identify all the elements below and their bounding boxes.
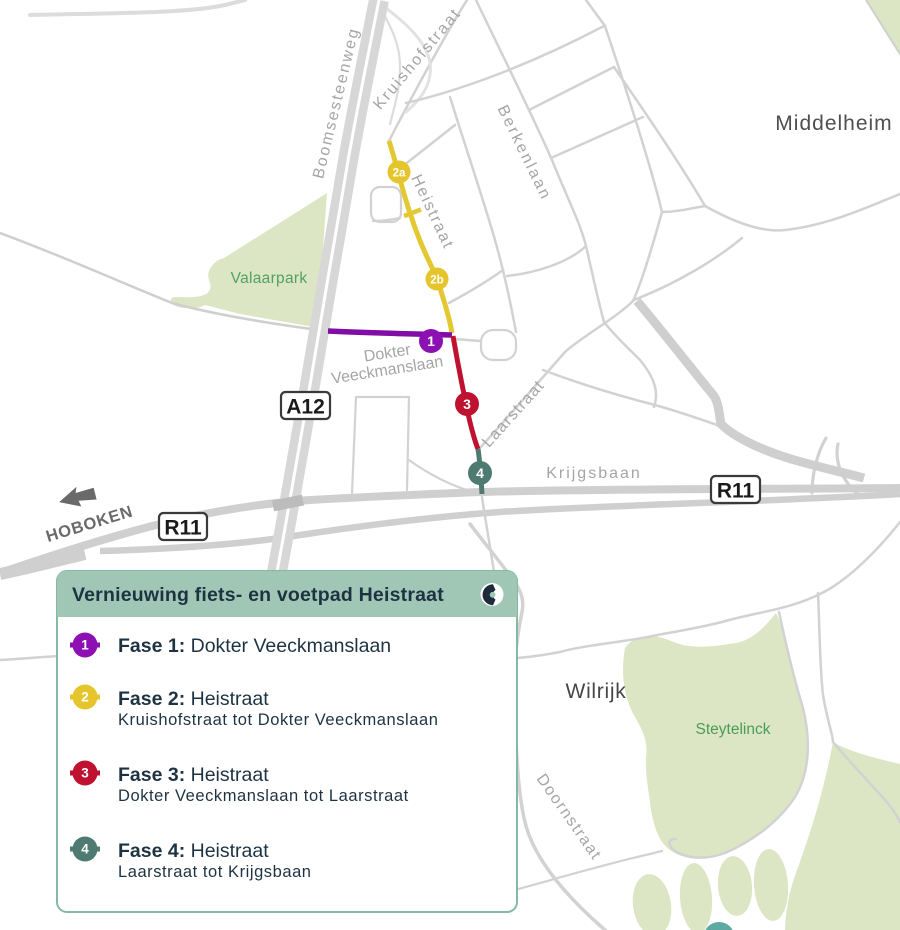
svg-text:4: 4 xyxy=(476,465,484,481)
svg-text:Laarstraat tot Krijgsbaan: Laarstraat tot Krijgsbaan xyxy=(118,863,312,881)
svg-text:3: 3 xyxy=(81,766,89,781)
svg-text:A12: A12 xyxy=(286,396,325,419)
svg-text:Vernieuwing fiets- en voetpad: Vernieuwing fiets- en voetpad Heistraat xyxy=(72,584,444,606)
svg-text:Krijgsbaan: Krijgsbaan xyxy=(546,465,642,482)
svg-text:Middelheim: Middelheim xyxy=(775,112,892,135)
svg-text:R11: R11 xyxy=(164,517,202,540)
svg-text:3: 3 xyxy=(463,396,471,412)
svg-text:Steytelinck: Steytelinck xyxy=(696,721,771,738)
svg-text:Wilrijk: Wilrijk xyxy=(566,680,627,703)
svg-text:Kruishofstraat tot Dokter Veec: Kruishofstraat tot Dokter Veeckmanslaan xyxy=(118,711,438,729)
svg-text:Fase 2: Heistraat: Fase 2: Heistraat xyxy=(118,688,269,710)
svg-text:Valaarpark: Valaarpark xyxy=(231,270,308,287)
svg-text:R11: R11 xyxy=(717,480,755,503)
svg-text:Fase 4: Heistraat: Fase 4: Heistraat xyxy=(118,840,269,862)
svg-text:Fase 1: Dokter Veeckmanslaan: Fase 1: Dokter Veeckmanslaan xyxy=(118,635,391,657)
svg-text:2: 2 xyxy=(81,690,89,705)
svg-text:1: 1 xyxy=(427,333,435,349)
svg-text:Fase 3: Heistraat: Fase 3: Heistraat xyxy=(118,764,269,786)
svg-text:2b: 2b xyxy=(430,275,443,287)
svg-text:4: 4 xyxy=(81,842,89,857)
svg-text:2a: 2a xyxy=(393,168,406,180)
svg-text:Dokter Veeckmanslaan tot Laars: Dokter Veeckmanslaan tot Laarstraat xyxy=(118,787,409,805)
svg-text:1: 1 xyxy=(81,638,89,653)
